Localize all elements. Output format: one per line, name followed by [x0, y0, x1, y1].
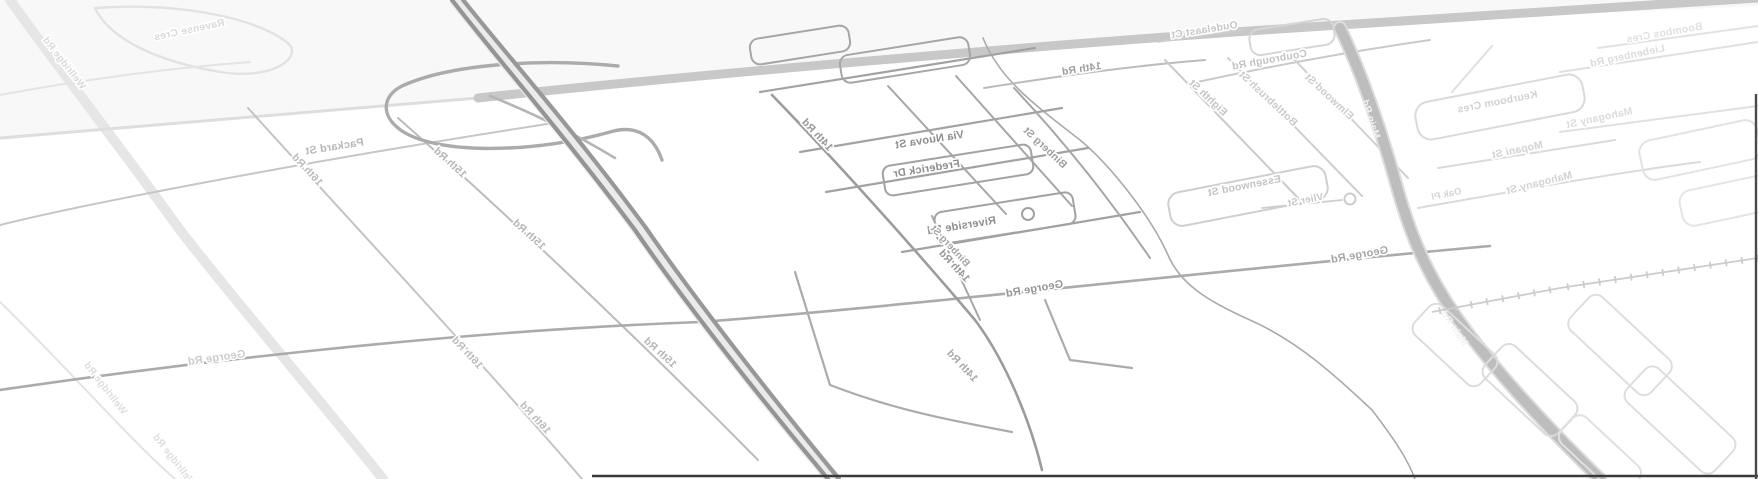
road-fourteenth-rd-center — [772, 95, 1042, 470]
road-label-frederick-dr-1: Frederick Dr — [892, 158, 961, 180]
map-canvas[interactable]: Via Nuova StFrederick DrRiverside Rd14th… — [0, 0, 1758, 479]
road-label-bottlebrush-st-20: Bottlebrush St — [1236, 69, 1299, 129]
railway-tick — [1726, 259, 1727, 266]
road-label-mopani-st-29: Mopani St — [1490, 139, 1544, 162]
road-right-connector — [1452, 46, 1492, 92]
street-loop-tr-block-1 — [1637, 118, 1758, 182]
road-label-16th-rd-16: 16th Rd — [449, 334, 485, 371]
road-label-14th-rd-6: 14th Rd — [1061, 60, 1102, 78]
road-label-eighth-st-19: Eighth St — [1186, 77, 1229, 119]
railway-tick — [1534, 289, 1535, 296]
railway-tick — [1502, 295, 1503, 302]
railway-tick — [1710, 262, 1711, 269]
road-label-george-rd-9: George Rd — [1005, 278, 1064, 300]
culdesac-culdesac-vlier — [1345, 194, 1356, 205]
railway-tick — [1455, 304, 1456, 311]
railway-tick — [1439, 307, 1440, 314]
street-loop-grid-block-4 — [933, 191, 1076, 245]
railway-tick — [1518, 292, 1519, 299]
road-label-binberg-st-7: Binberg St — [1021, 124, 1070, 171]
road-label-boombos-cres-34: Boombos Cres — [1625, 20, 1703, 45]
railway-tick — [1486, 298, 1487, 305]
road-label-vlier-st-25: Vlier St — [1286, 192, 1324, 210]
road-below-george-l2 — [1045, 300, 1132, 368]
road-label-15th-rd-14: 15th Rd — [641, 335, 679, 371]
road-label-liebenberg-rd-33: Liebenberg Rd — [1589, 42, 1666, 70]
railway-tick — [1599, 279, 1600, 286]
street-loop-br-block-3 — [1564, 291, 1676, 400]
map-viewport[interactable]: Via Nuova StFrederick DrRiverside Rd14th… — [0, 0, 1758, 479]
tint-above-top-road — [0, 0, 1758, 140]
railway-tick — [1694, 264, 1695, 271]
road-label-16th-rd-17: 16th Rd — [517, 399, 553, 436]
road-label-keurboom-cres-28: Keurboom Cres — [1456, 88, 1538, 115]
road-label-elmwood-st-21: Elmwood St — [1302, 71, 1356, 122]
road-label-coubrough-rd-22: Coubrough Rd — [1231, 48, 1308, 73]
road-label-essenwood-st-24: Essenwood St — [1207, 173, 1282, 199]
road-label-15th-rd-12: 15th Rd — [431, 145, 469, 181]
culdesac-culdesac-grid — [1022, 208, 1034, 220]
railway-tick — [1615, 276, 1616, 283]
road-pale-left-thin — [0, 302, 175, 479]
railway-tick — [1567, 283, 1568, 290]
road-label-15th-rd-13: 15th Rd — [510, 217, 548, 253]
road-label-wellridge-rd-37: Wellridge Rd — [81, 360, 129, 417]
road-label-george-rd-10: George Rd — [1330, 244, 1389, 266]
railway-tick — [1646, 271, 1647, 278]
road-packard-st — [0, 122, 560, 225]
railway-tick — [1631, 274, 1632, 281]
road-label-george-rd-11: George Rd — [187, 348, 246, 368]
road-label-wellridge-rd-38: Wellridge Rd — [150, 432, 198, 479]
railway-tick — [1662, 269, 1663, 276]
street-loop-br-block-4 — [1620, 362, 1739, 477]
railway-tick — [1678, 267, 1679, 274]
railway-tick — [1741, 257, 1742, 264]
road-label-mahogany-st-30: Mahogany St — [1505, 169, 1574, 197]
railway-tick — [1471, 301, 1472, 308]
railway-railway-east — [1432, 258, 1758, 312]
road-grid-v3 — [956, 76, 1072, 206]
street-loop-tr-block-2 — [1677, 172, 1758, 228]
railway-tick — [1549, 286, 1550, 293]
railway-tick — [1583, 281, 1584, 288]
road-label-14th-rd-5: 14th Rd — [944, 347, 980, 384]
